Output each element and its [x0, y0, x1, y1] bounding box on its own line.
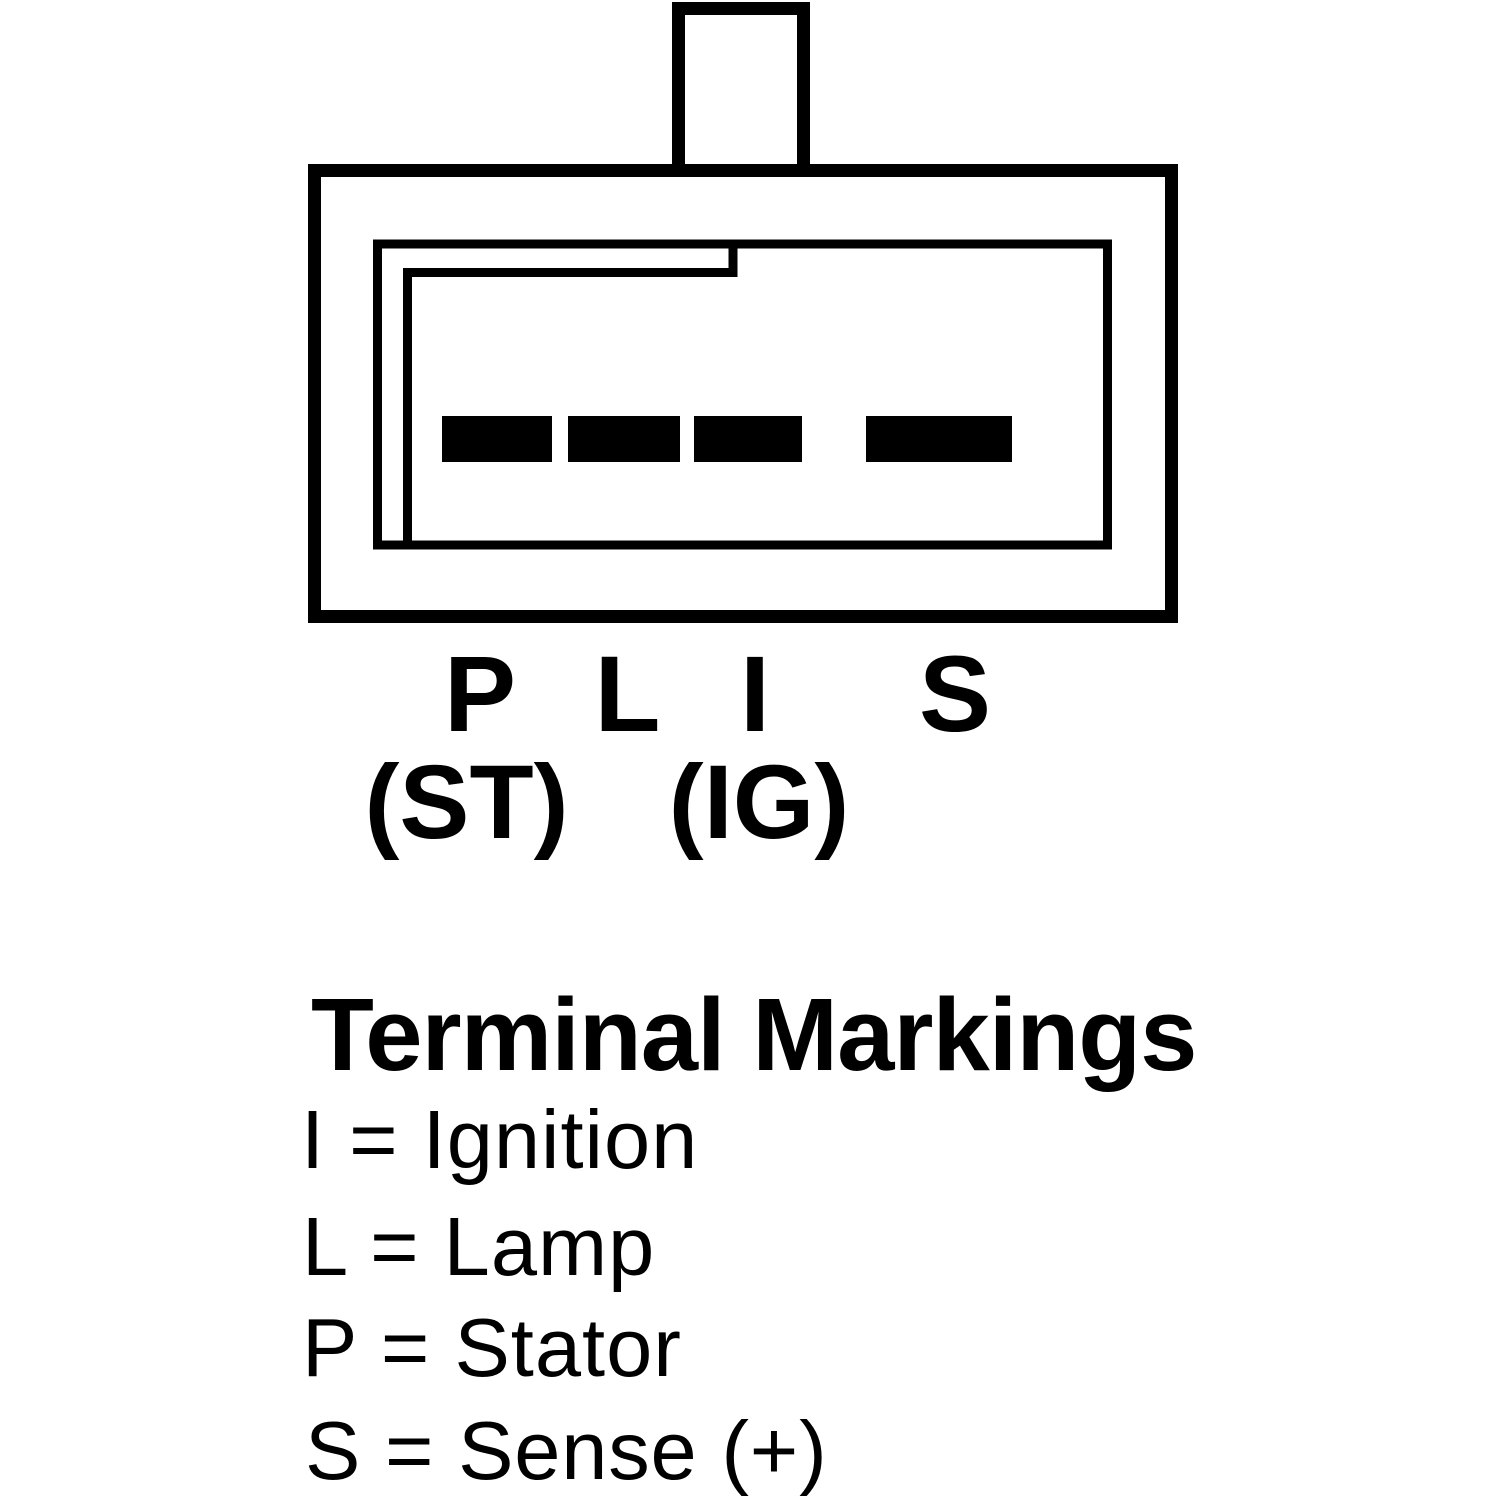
svg-text:I = Ignition: I = Ignition	[301, 1093, 698, 1186]
svg-text:P = Stator: P = Stator	[302, 1301, 682, 1394]
svg-text:L: L	[595, 633, 661, 754]
svg-text:(ST): (ST)	[364, 744, 568, 861]
svg-text:L = Lamp: L = Lamp	[302, 1200, 655, 1293]
svg-text:Terminal Markings: Terminal Markings	[311, 977, 1196, 1092]
svg-text:S: S	[919, 633, 991, 754]
svg-text:(IG): (IG)	[669, 744, 850, 861]
svg-text:I: I	[740, 633, 770, 754]
svg-text:P: P	[444, 633, 516, 754]
svg-text:S = Sense (+): S = Sense (+)	[305, 1404, 828, 1497]
